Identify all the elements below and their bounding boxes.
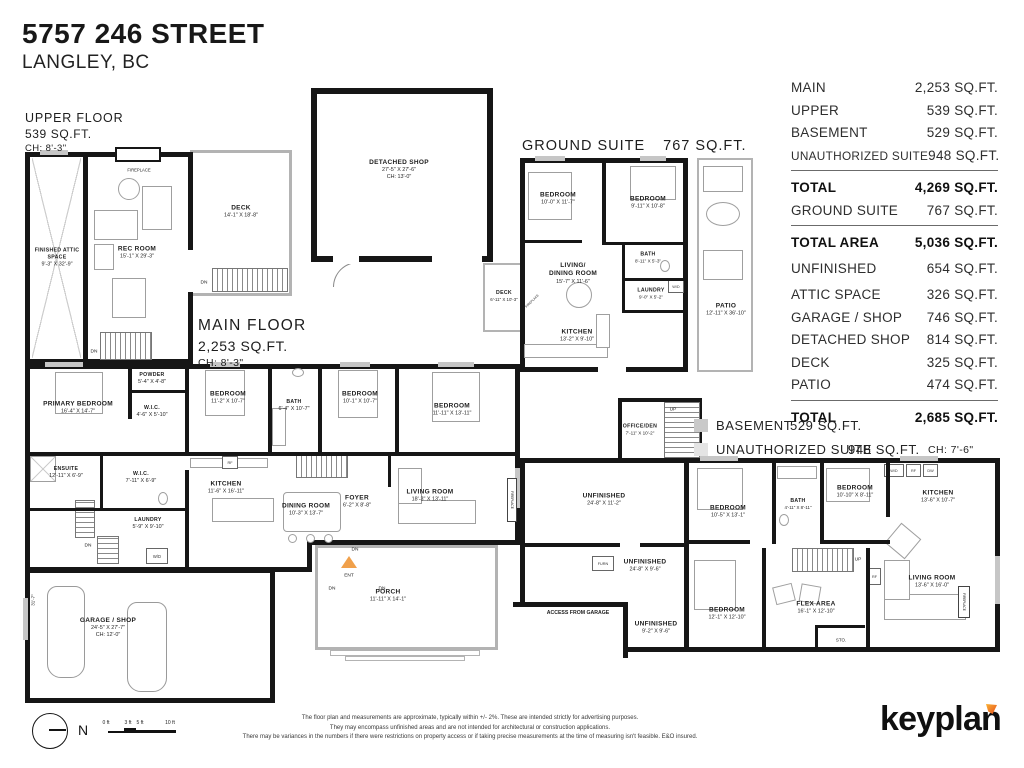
stairs <box>792 548 854 572</box>
label-basement-bedroom: BEDROOM10'-10" X 8'-11" <box>837 484 874 499</box>
wall-segment <box>25 508 185 511</box>
toilet-icon <box>779 514 789 526</box>
stairs <box>97 536 119 564</box>
door-opening <box>333 254 359 264</box>
wall-segment <box>602 242 688 245</box>
label-garage-shop: GARAGE / SHOP24'-5" X 27'-7"CH: 12'-0" <box>80 617 136 639</box>
label-bedroom: BEDROOM10'-1" X 10'-7" <box>342 390 378 405</box>
wall-segment <box>128 390 188 393</box>
dn-label: DN <box>85 544 92 549</box>
wall-segment <box>520 240 582 243</box>
table-divider <box>791 225 998 226</box>
label-unfinished: UNFINISHED24'-8" X 11'-2" <box>583 492 626 507</box>
car-icon <box>127 602 167 692</box>
main-floor-title: MAIN FLOOR 2,253 SQ.FT. CH: 8'-3" <box>198 317 306 369</box>
porch-step <box>345 656 465 661</box>
kitchen-island-icon <box>212 498 274 522</box>
legend-suite-area: 948 SQ.FT. <box>848 442 920 457</box>
label-primary-bedroom: PRIMARY BEDROOM16'-4" X 14'-7" <box>43 400 113 415</box>
table-icon <box>118 178 140 200</box>
table-row: UNFINISHED654 SQ.FT. <box>791 261 998 276</box>
table-row: UPPER539 SQ.FT. <box>791 103 998 118</box>
stairs <box>75 500 95 538</box>
patio-sofa-icon <box>703 166 743 192</box>
table-row: BASEMENT529 SQ.FT. <box>791 125 998 140</box>
wall-segment <box>622 278 688 281</box>
table-row: DETACHED SHOP814 SQ.FT. <box>791 332 998 347</box>
label-finished-attic-space: FINISHED ATTIC SPACE9'-3" X 32'-9" <box>30 248 84 269</box>
label-suite-bedroom: BEDROOM10'-0" X 11'-7" <box>540 191 576 206</box>
wall-segment <box>25 452 185 456</box>
entry-marker-icon <box>341 556 357 568</box>
label-bedroom: BEDROOM11'-2" X 10'-7" <box>210 390 246 405</box>
wall-segment <box>388 452 391 487</box>
label-porch: PORCH11'-11" X 14'-1" <box>370 588 406 603</box>
wall-segment <box>622 242 625 312</box>
wall-segment <box>688 540 750 544</box>
table-row: DECK325 SQ.FT. <box>791 355 998 370</box>
keyplan-logo: keyplan <box>880 700 1001 739</box>
table-row: GARAGE / SHOP746 SQ.FT. <box>791 310 998 325</box>
area-summary-table: MAIN2,253 SQ.FT. UPPER539 SQ.FT. BASEMEN… <box>791 80 998 432</box>
label-unfinished: UNFINISHED9'-2" X 9'-6" <box>635 620 678 635</box>
sofa-icon <box>94 210 138 240</box>
up-label: UP <box>670 408 677 413</box>
table-row: GROUND SUITE767 SQ.FT. <box>791 203 998 218</box>
stairs <box>100 332 152 360</box>
dn-label: DN <box>91 350 98 355</box>
label-powder: POWDER5'-4" X 4'-8" <box>138 372 166 386</box>
bathtub-icon <box>777 466 817 479</box>
sofa-icon <box>884 560 910 600</box>
page-subtitle: LANGLEY, BC <box>22 52 150 74</box>
wall-segment <box>762 548 766 652</box>
wall-segment <box>820 462 824 544</box>
label-office-den: OFFICE/DEN7'-11" X 10'-2" <box>623 424 657 437</box>
table-row: UNAUTHORIZED SUITE948 SQ.FT. <box>791 148 998 163</box>
door-opening <box>432 255 482 263</box>
label-rec-room: REC ROOM15'-1" X 29'-3" <box>118 245 156 260</box>
wall-segment <box>318 364 322 452</box>
label-upper-deck: DECK14'-1" X 18'-8" <box>224 204 258 219</box>
patio-table-icon <box>706 202 740 226</box>
north-arrow-needle <box>49 729 66 731</box>
label-living-room: LIVING ROOM18'-3" X 13'-11" <box>407 488 454 503</box>
fireplace-label: FIREPLACE <box>127 168 150 173</box>
dn-label: DN <box>201 281 208 286</box>
legend-basement-swatch <box>694 419 708 432</box>
label-deck: DECK6'-11" X 10'-3" <box>490 290 517 302</box>
dimension-label: 31'-7" <box>31 594 36 605</box>
fridge-icon: RF <box>906 464 921 477</box>
label-unfinished: UNFINISHED24'-8" X 9'-6" <box>624 558 667 573</box>
label-wic: W.I.C.7'-11" X 6'-9" <box>126 471 157 485</box>
table-row-total-area: TOTAL AREA5,036 SQ.FT. <box>791 235 998 250</box>
disclaimer-text: The floor plan and measurements are appr… <box>170 714 770 743</box>
legend-suite-swatch <box>694 443 708 456</box>
furnace-icon: FURN <box>592 556 614 571</box>
stairs <box>212 268 288 292</box>
chair-icon <box>288 534 297 543</box>
table-row: ATTIC SPACE326 SQ.FT. <box>791 287 998 302</box>
label-basement-bath: BATH4'-11" X 8'-11" <box>784 498 811 510</box>
access-from-garage-label: ACCESS FROM GARAGE <box>547 610 610 616</box>
legend-suite-ceiling: CH: 7'-6" <box>928 444 974 456</box>
label-suite-living-dining: LIVING/DINING ROOM15'-7" X 11'-6" <box>549 262 597 286</box>
fireplace-label: FIREPLACE <box>510 491 514 509</box>
label-suite-bedroom: BEDROOM9'-11" X 10'-8" <box>630 195 666 210</box>
ent-label: ENT <box>344 574 354 579</box>
bathtub-icon <box>272 408 286 446</box>
table-row: MAIN2,253 SQ.FT. <box>791 80 998 95</box>
wall-segment <box>772 462 776 544</box>
sofa-icon <box>142 186 172 230</box>
label-bedroom: BEDROOM11'-11" X 13'-11" <box>433 402 472 417</box>
door-swing-icon <box>333 262 358 287</box>
scale-label: 0 ft <box>103 720 110 726</box>
label-laundry: LAUNDRY5'-9" X 9'-10" <box>132 517 163 531</box>
wall-segment <box>886 462 890 517</box>
table-divider <box>791 170 998 171</box>
scale-bar <box>124 728 136 733</box>
table-divider <box>791 400 998 401</box>
legend-basement-area: 529 SQ.FT. <box>790 418 862 433</box>
dishwasher-icon: DW <box>923 464 938 477</box>
label-patio: PATIO12'-11" X 36'-10" <box>706 302 746 317</box>
wall-segment <box>185 452 520 456</box>
wall-segment <box>815 625 818 652</box>
table-icon <box>112 278 146 318</box>
door-opening <box>598 367 626 377</box>
dn-label: DN <box>379 587 386 592</box>
storage-label: STO. <box>836 638 846 643</box>
wall-segment <box>866 548 870 652</box>
up-label: UP <box>855 558 862 563</box>
bed-icon <box>694 560 736 610</box>
wall-segment <box>185 470 189 572</box>
chair-icon <box>324 534 333 543</box>
upper-floor-title: UPPER FLOOR 539 SQ.FT. CH: 8'-3" <box>25 111 123 154</box>
washer-dryer-icon: W/D <box>146 548 168 564</box>
label-basement-living-room: LIVING ROOM13'-6" X 16'-0" <box>909 574 956 589</box>
label-bath: BATH6'-4" X 10'-7" <box>278 399 309 413</box>
door-opening <box>186 250 195 292</box>
page-title: 5757 246 STREET <box>22 18 265 50</box>
table-row-total: TOTAL4,269 SQ.FT. <box>791 180 998 195</box>
fireplace-label: FIREPLACE <box>962 593 966 611</box>
table-row: PATIO474 SQ.FT. <box>791 377 998 392</box>
chair-icon <box>94 244 114 270</box>
north-label: N <box>78 722 88 738</box>
toilet-icon <box>660 260 670 272</box>
toilet-icon <box>292 368 304 377</box>
washer-dryer-icon: W/D <box>668 280 684 293</box>
wall-segment <box>524 543 620 547</box>
label-wic: W.I.C.4'-6" X 5'-10" <box>136 405 167 419</box>
label-suite-laundry: LAUNDRY9'-0" X 5'-2" <box>637 288 664 301</box>
legend-basement-label: BASEMENT <box>716 418 792 433</box>
scale-bar <box>108 731 124 733</box>
label-basement-kitchen: KITCHEN13'-6" X 10'-7" <box>921 489 955 504</box>
dn-label: DN <box>352 548 359 553</box>
chair-icon <box>306 534 315 543</box>
wall-segment <box>185 364 189 456</box>
wall-segment <box>602 158 606 244</box>
window <box>340 362 370 367</box>
wall-segment <box>640 543 688 547</box>
label-flex-area: FLEX AREA16'-1" X 12'-10" <box>796 600 835 615</box>
window <box>45 362 83 367</box>
scale-label: 5 ft <box>137 720 144 726</box>
counter-icon <box>596 314 610 348</box>
label-basement-bedroom: BEDROOM10'-5" X 13'-1" <box>710 504 746 519</box>
window <box>23 598 28 640</box>
label-dining-room: DINING ROOM10'-3" X 13'-7" <box>282 502 330 517</box>
label-suite-kitchen: KITCHEN13'-2" X 9'-10" <box>560 328 594 343</box>
label-ensuite: ENSUITE12'-11" X 6'-9" <box>49 466 83 480</box>
wall-segment <box>820 540 890 544</box>
wall-segment <box>395 364 399 452</box>
label-basement-bedroom: BEDROOM12'-1" X 12'-10" <box>708 606 745 621</box>
label-detached-shop: DETACHED SHOP27'-5" X 27'-6"CH: 13'-0" <box>369 159 429 181</box>
window <box>438 362 474 367</box>
toilet-icon <box>158 492 168 505</box>
wall-segment <box>100 452 103 510</box>
patio-sofa-icon <box>703 250 743 280</box>
window <box>535 156 565 161</box>
label-suite-bath: BATH8'-11" X 5'-3" <box>635 252 661 265</box>
label-foyer: FOYER6'-2" X 8'-8" <box>343 494 371 509</box>
ground-suite-title: GROUND SUITE767 SQ.FT. <box>522 138 747 154</box>
dn-label: DN <box>329 587 336 592</box>
floor-plan-sheet: 5757 246 STREET LANGLEY, BC MAIN2,253 SQ… <box>0 0 1024 768</box>
wall-segment <box>622 310 688 313</box>
window <box>995 556 1000 604</box>
fridge-icon: RF <box>222 456 238 469</box>
wall-segment <box>268 364 272 452</box>
window <box>640 156 666 161</box>
label-kitchen: KITCHEN11'-6" X 16'-11" <box>208 480 244 495</box>
scale-label: 3 ft <box>125 720 132 726</box>
wall-segment <box>684 462 689 652</box>
wall-segment <box>815 625 865 628</box>
north-arrow-icon <box>32 713 68 749</box>
